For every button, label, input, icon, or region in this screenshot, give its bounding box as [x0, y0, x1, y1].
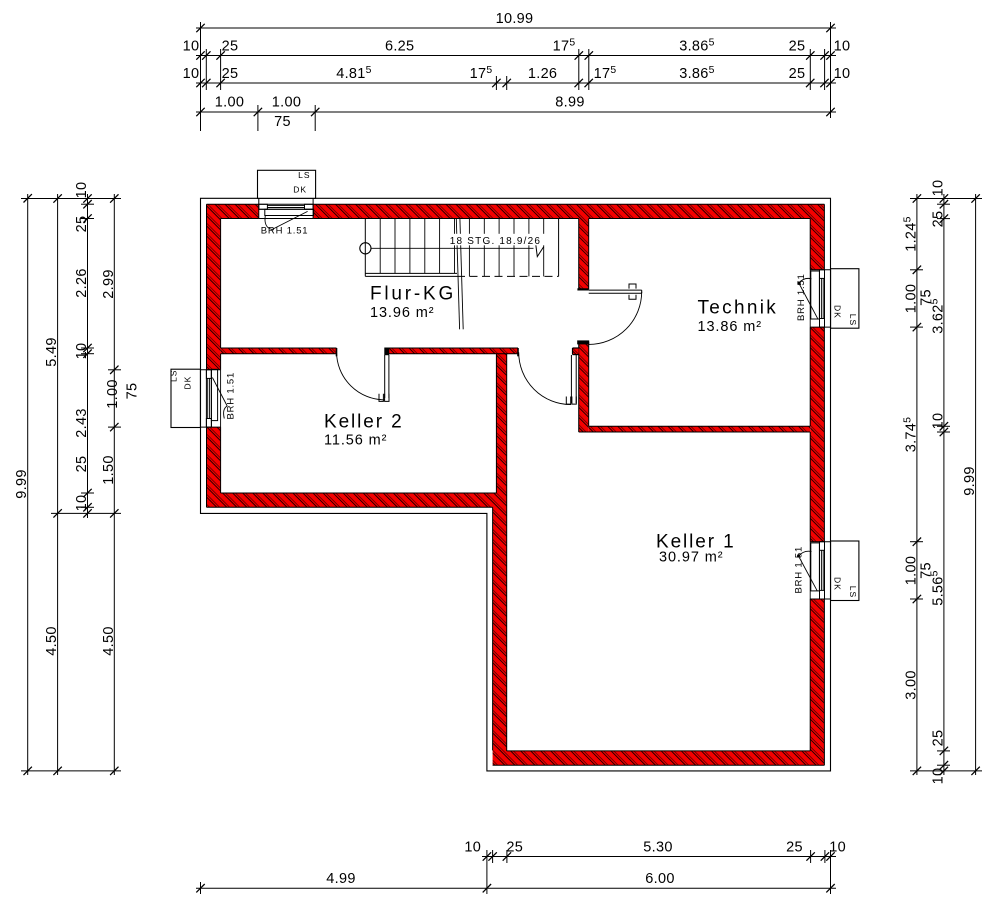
svg-text:25: 25 — [789, 66, 806, 82]
svg-text:10: 10 — [74, 495, 90, 512]
svg-text:11.56 m²: 11.56 m² — [324, 433, 387, 449]
svg-text:6.00: 6.00 — [645, 871, 674, 887]
svg-text:DK: DK — [833, 577, 843, 591]
svg-text:4.99: 4.99 — [326, 871, 355, 887]
svg-text:10: 10 — [930, 413, 946, 430]
svg-text:10: 10 — [930, 768, 946, 785]
svg-text:Flur-KG: Flur-KG — [370, 284, 456, 305]
svg-text:25: 25 — [789, 39, 806, 55]
svg-text:13.86 m²: 13.86 m² — [698, 319, 762, 335]
svg-text:Technik: Technik — [698, 298, 779, 319]
svg-text:10: 10 — [829, 840, 846, 856]
svg-text:BRH 1.51: BRH 1.51 — [261, 226, 309, 237]
svg-text:25: 25 — [930, 730, 946, 747]
svg-text:10: 10 — [834, 66, 851, 82]
svg-text:10: 10 — [74, 343, 90, 360]
svg-text:25: 25 — [222, 66, 239, 82]
svg-text:10: 10 — [834, 39, 851, 55]
svg-text:1.26: 1.26 — [528, 66, 557, 82]
svg-text:13.96 m²: 13.96 m² — [370, 305, 434, 321]
svg-text:10: 10 — [183, 39, 200, 55]
svg-text:25: 25 — [74, 456, 90, 473]
svg-text:4.50: 4.50 — [101, 626, 117, 655]
svg-text:25: 25 — [786, 840, 803, 856]
svg-text:1.00: 1.00 — [105, 379, 121, 408]
svg-text:18 STG. 18.9/26: 18 STG. 18.9/26 — [450, 236, 541, 247]
svg-text:BRH 1.51: BRH 1.51 — [794, 546, 805, 594]
svg-text:10: 10 — [183, 66, 200, 82]
svg-text:10.99: 10.99 — [496, 11, 534, 27]
svg-text:10: 10 — [74, 182, 90, 199]
svg-text:LS: LS — [848, 586, 858, 598]
svg-text:75: 75 — [125, 383, 141, 400]
svg-text:LS: LS — [298, 170, 310, 180]
svg-text:1.00: 1.00 — [903, 556, 919, 585]
svg-text:2.43: 2.43 — [74, 408, 90, 437]
svg-text:9.99: 9.99 — [14, 469, 30, 498]
svg-text:6.25: 6.25 — [385, 39, 414, 55]
svg-text:25: 25 — [222, 39, 239, 55]
svg-text:LS: LS — [848, 314, 858, 326]
svg-text:5.49: 5.49 — [44, 337, 60, 366]
svg-text:75: 75 — [274, 114, 291, 130]
svg-text:1.50: 1.50 — [101, 455, 117, 484]
svg-text:25: 25 — [506, 840, 523, 856]
svg-text:4.50: 4.50 — [44, 626, 60, 655]
svg-text:LS: LS — [169, 370, 179, 382]
svg-text:1.00: 1.00 — [903, 284, 919, 313]
svg-text:2.99: 2.99 — [101, 269, 117, 298]
svg-text:BRH 1.51: BRH 1.51 — [226, 372, 237, 420]
svg-text:9.99: 9.99 — [962, 466, 978, 495]
svg-text:BRH 1.51: BRH 1.51 — [796, 273, 807, 321]
svg-text:Keller 2: Keller 2 — [324, 412, 404, 433]
svg-text:10: 10 — [930, 180, 946, 197]
svg-text:1.00: 1.00 — [215, 95, 244, 111]
svg-text:DK: DK — [833, 305, 843, 319]
svg-text:5.30: 5.30 — [643, 840, 672, 856]
svg-text:DK: DK — [183, 376, 193, 390]
svg-text:10: 10 — [464, 840, 481, 856]
svg-text:30.97 m²: 30.97 m² — [659, 550, 723, 566]
svg-text:1.00: 1.00 — [272, 95, 301, 111]
svg-text:2.26: 2.26 — [74, 268, 90, 297]
svg-text:DK: DK — [293, 185, 307, 195]
svg-text:3.00: 3.00 — [903, 670, 919, 699]
svg-text:8.99: 8.99 — [555, 95, 584, 111]
